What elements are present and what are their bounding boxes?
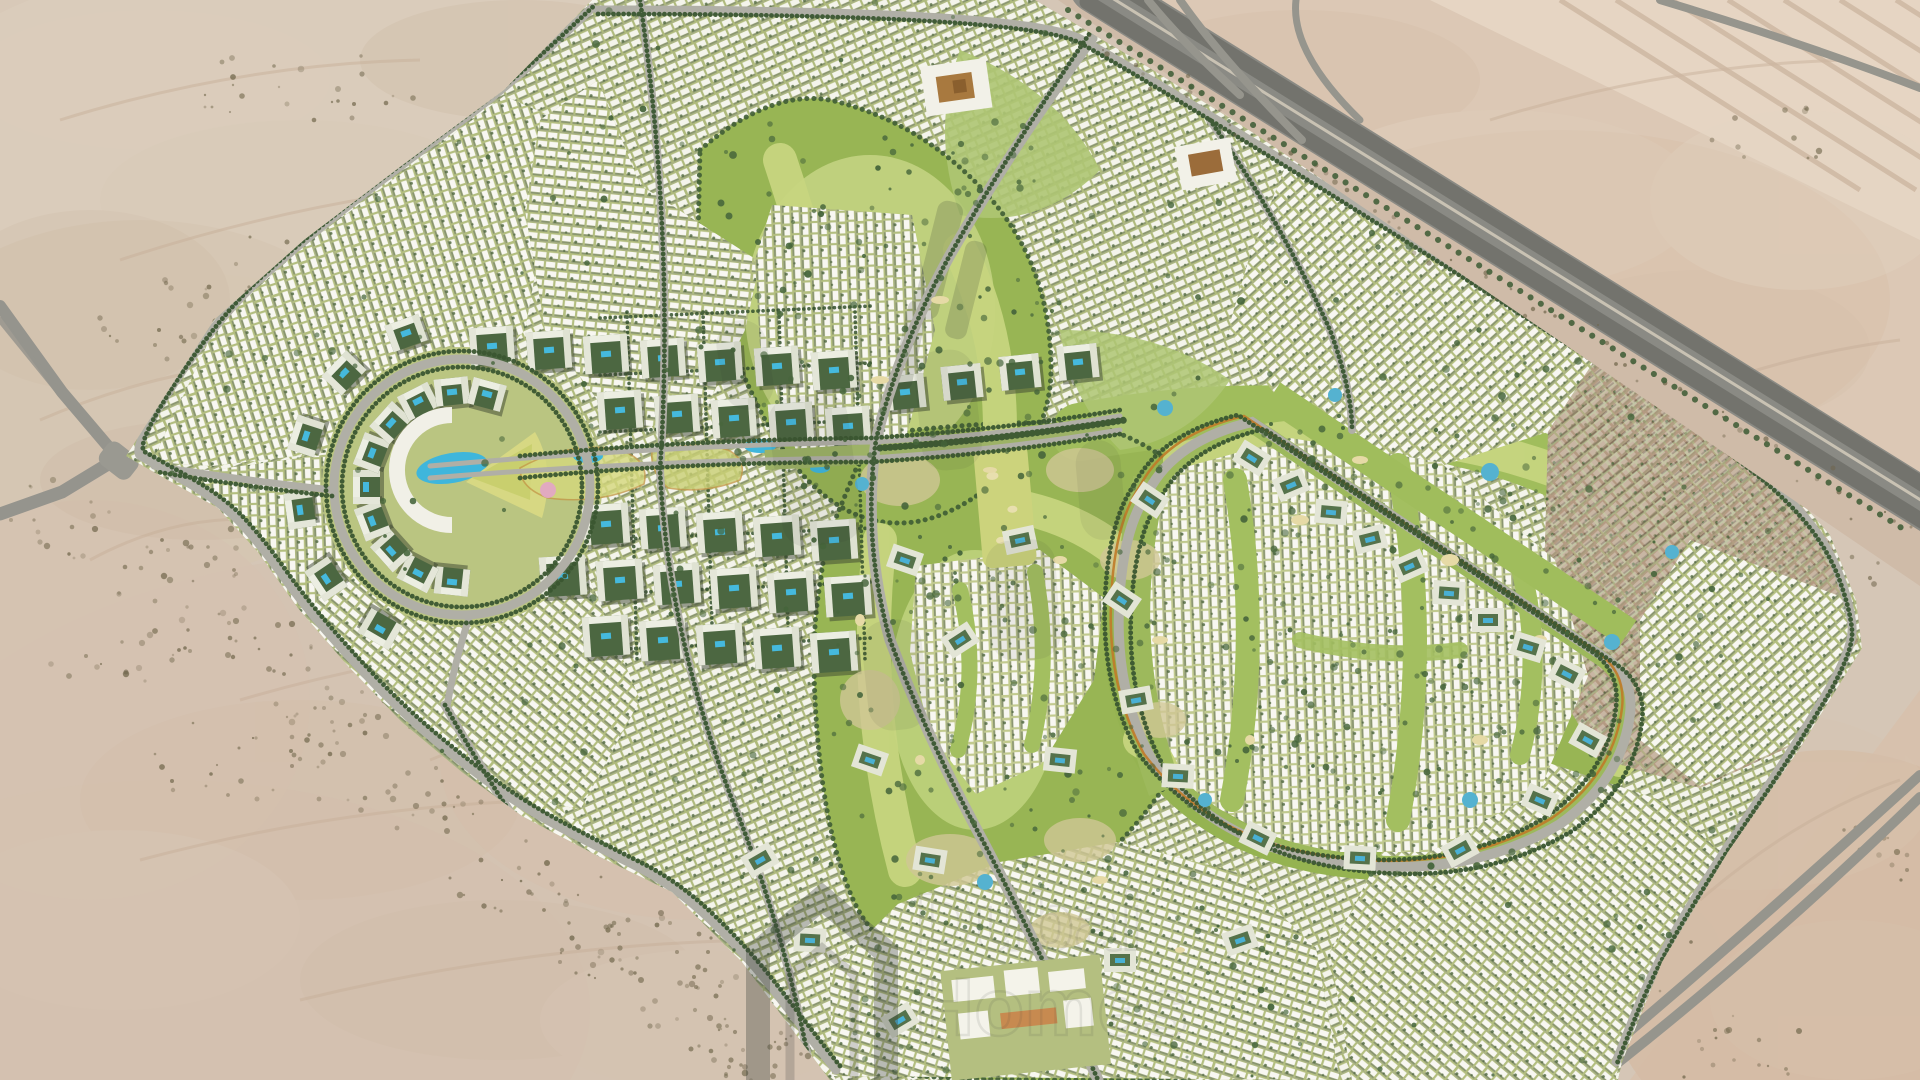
svg-text:Dubai: Dubai xyxy=(915,877,1143,968)
svg-text:Homes: Homes xyxy=(915,962,1188,1053)
